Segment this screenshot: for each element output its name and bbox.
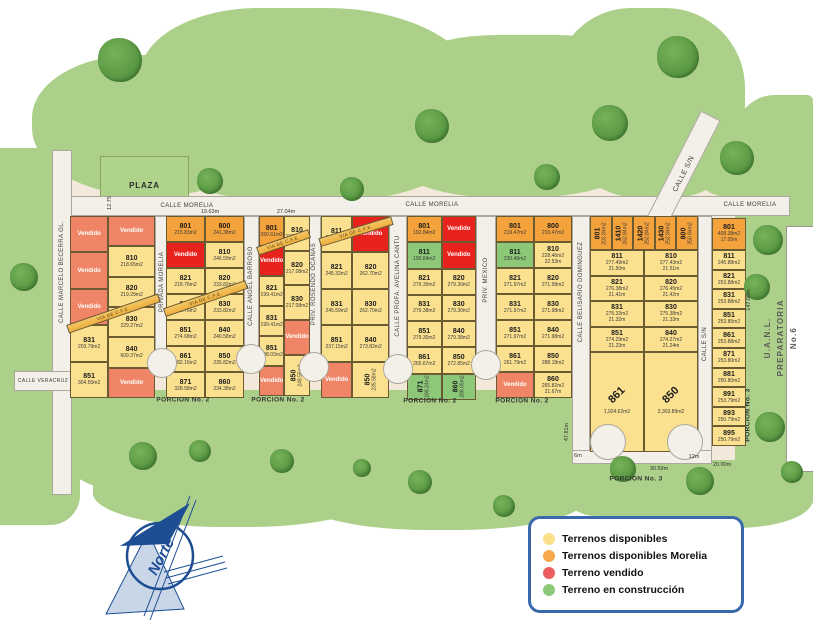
culdesac-block7-left (590, 424, 626, 460)
lot-vendido: Vendido (70, 252, 108, 288)
lot-860: 860265.82m221.67m (534, 372, 572, 398)
legend-item-label: Terreno en construcción (562, 584, 684, 596)
street-label-calle-sn-vertical: CALLE S/N (702, 327, 708, 361)
lot-801: 801215.83m2 (166, 216, 205, 242)
lot-851: 851271.97m2 (496, 320, 534, 346)
site-plan: PLAZA VendidoVendidoVendido831203.79m285… (0, 0, 813, 637)
street-label-morelia-mid: CALLE MORELIA (406, 202, 459, 208)
compass-icon: Norte (92, 494, 227, 624)
tree-icon (415, 109, 449, 143)
measurement-19-63: 19.63m (201, 209, 219, 215)
legend-item: Terreno en construcción (543, 584, 729, 596)
lot-820: 820217.08m2 (284, 251, 309, 286)
measurement-27-04: 27.04m (277, 209, 295, 215)
lot-851: 851253.85m2 (712, 309, 746, 329)
lot-801: 801219.47m2 (496, 216, 534, 242)
uanl-label: U.A.N.L. PREPARATORIA No.6 (762, 300, 800, 377)
lot-891: 891253.79m2 (712, 387, 746, 407)
lot-831: 831275.33m221.32m (590, 301, 644, 327)
lot-821: 821245.32m2 (321, 252, 352, 288)
plaza-label: PLAZA (129, 181, 160, 190)
lot-801: 801408.38m217.05m (712, 218, 746, 250)
culdesac-rosendo-ocanas (299, 352, 329, 382)
block-1: VendidoVendidoVendido831203.79m2851304.5… (70, 216, 155, 398)
lot-840: 840273.82m2 (352, 325, 389, 361)
street-label-marcelo-becerra: CALLE MARCELO BECERRA GL. (59, 221, 65, 323)
street-label-avelina-cantu: CALLE PROFA. AVELINA CANTU (395, 235, 401, 336)
lot-893: 893250.79m2 (712, 407, 746, 427)
tree-icon (657, 36, 699, 78)
lot-1410: 1410262.84m2 (612, 216, 634, 250)
lot-860: 860288.05m2 (442, 374, 477, 400)
lot-vendido: Vendido (284, 320, 309, 355)
lot-811: 811245.88m2 (712, 250, 746, 270)
legend-swatch (543, 550, 555, 562)
tree-icon (270, 449, 294, 473)
legend-item: Terrenos disponibles Morelia (543, 550, 729, 562)
lot-840: 840279.38m2 (442, 321, 477, 347)
lot-840: 840240.58m2 (205, 320, 244, 346)
lot-820: 820271.98m2 (534, 268, 572, 294)
lot-851: 851274.29m221.23m (590, 327, 644, 353)
lot-810: 810246.59m2 (205, 242, 244, 268)
lot-830: 830262.70m2 (352, 289, 389, 325)
lot-895: 895250.79m2 (712, 426, 746, 446)
street-label-belisario-dominguez: CALLE BELISARIO DOMINGUEZ (578, 242, 584, 343)
lot-821: 821279.30m2 (407, 269, 442, 295)
tree-icon (592, 105, 628, 141)
lot-800: 800250.84m2 (676, 216, 698, 250)
lot-881: 881250.80m2 (712, 368, 746, 388)
lot-821: 821253.88m2 (712, 270, 746, 290)
legend-item: Terrenos disponibles (543, 533, 729, 545)
measurement-12m: 12m (689, 454, 700, 460)
tree-icon (534, 164, 560, 190)
legend-rows: Terrenos disponiblesTerrenos disponibles… (543, 533, 729, 596)
porcion3-label-vertical: PORCION No. 3 (745, 388, 752, 441)
tree-icon (353, 459, 371, 477)
lot-800: 800241.38m2 (205, 216, 244, 242)
legend-swatch (543, 533, 555, 545)
tree-icon (493, 495, 515, 517)
tree-icon (10, 263, 38, 291)
culdesac-avelina-cantu (383, 354, 413, 384)
block-6: 801219.47m2811230.46m2821271.97m2831271.… (496, 216, 572, 398)
lot-831: 831199.41m2 (259, 306, 284, 336)
tree-icon (755, 412, 785, 442)
tree-icon (129, 442, 157, 470)
lot-821: 821199.41m2 (259, 276, 284, 306)
lot-810: 810277.43m221.51m (644, 250, 698, 276)
lot-831: 831271.97m2 (496, 294, 534, 320)
lot-vendido: Vendido (108, 368, 155, 398)
lot-810: 810218.65m2 (108, 246, 155, 276)
legend-item-label: Terrenos disponibles Morelia (562, 550, 707, 562)
tree-icon (197, 168, 223, 194)
lot-vendido: Vendido (166, 242, 205, 268)
lot-1430: 1430252.84m2 (655, 216, 677, 250)
lot-830: 830217.08m2 (284, 285, 309, 320)
legend-item-label: Terrenos disponibles (562, 533, 667, 545)
measurement-plaza: 12.75 (107, 196, 113, 210)
lot-1420: 1420252.84m2 (633, 216, 655, 250)
lot-860: 860234.38m2 (205, 372, 244, 398)
block-7: 801202.84m21410262.84m21420252.84m214302… (590, 216, 698, 452)
lot-810: 810228.46m222.53m (534, 242, 572, 268)
lot-vendido: Vendido (108, 216, 155, 246)
culdesac-angel-barroso (236, 344, 266, 374)
tree-icon (753, 225, 783, 255)
lot-vendido: Vendido (70, 216, 108, 252)
lot-851: 851304.50m2 (70, 362, 108, 398)
lot-830: 830275.38m221.33m (644, 301, 698, 327)
lot-800: 800219.47m2 (534, 216, 572, 242)
legend: Terrenos disponiblesTerrenos disponibles… (528, 516, 744, 613)
lot-831: 831245.59m2 (321, 289, 352, 325)
measurement-20-00: 20.00m (713, 462, 731, 468)
block-8: 801408.38m217.05m811245.88m2821253.88m28… (712, 218, 746, 446)
street-label-rosendo-ocanas: PRIV. ROSENDO OCANAS (311, 243, 317, 325)
lot-820: 820279.30m2 (442, 269, 477, 295)
porcion2-label: PORCION No. 2 (495, 398, 548, 405)
lot-820: 820262.70m2 (352, 252, 389, 288)
lot-vendido: Vendido (496, 372, 534, 398)
measurement-47-81: 47.81m (564, 423, 570, 441)
lot-801: 801202.84m2 (590, 216, 612, 250)
legend-swatch (543, 584, 555, 596)
lot-811: 811230.46m2 (496, 242, 534, 268)
lot-861: 861261.79m2 (496, 346, 534, 372)
block-2: 801215.83m2Vendido821218.76m2831270.76m2… (166, 216, 244, 398)
measurement-30-59: 30.59m (650, 466, 668, 472)
measurement-6m: 6m (574, 453, 582, 459)
measurement-147-06: 147.06m (746, 289, 752, 310)
legend-item-label: Terreno vendido (562, 567, 643, 579)
lot-871: 871253.80m2 (712, 348, 746, 368)
lot-850: 850288.18m2 (534, 346, 572, 372)
tree-icon (340, 177, 364, 201)
legend-swatch (543, 567, 555, 579)
lot-820: 820276.45m221.42m (644, 276, 698, 302)
street-label-morelia-right: CALLE MORELIA (724, 202, 777, 208)
porcion2-label: PORCION No. 2 (251, 397, 304, 404)
lot-830: 830279.30m2 (442, 295, 477, 321)
tree-icon (408, 470, 432, 494)
tree-icon (98, 38, 142, 82)
street-label-angel-barroso: CALLE ANGEL BARROSO (248, 246, 254, 326)
culdesac-privada-morelia (147, 348, 177, 378)
block-5: 801192.84m2811190.84m2821279.30m2831279.… (407, 216, 476, 400)
culdesac-priv-mexico (471, 350, 501, 380)
lot-821: 821218.76m2 (166, 268, 205, 294)
lot-851: 851274.68m2 (166, 320, 205, 346)
porcion2-label: PORCION No. 2 (403, 398, 456, 405)
tree-icon (189, 440, 211, 462)
lot-851: 851279.30m2 (407, 321, 442, 347)
street-label-priv-mexico: PRIV. MEXICO (483, 257, 489, 302)
porcion3-label: PORCION No. 3 (609, 476, 662, 483)
tree-icon (686, 467, 714, 495)
lot-vendido: Vendido (442, 216, 477, 242)
legend-item: Terreno vendido (543, 567, 729, 579)
lot-851: 851237.15m2 (321, 325, 352, 361)
lot-811: 811277.49m221.50m (590, 250, 644, 276)
lot-871: 871188.24m2 (407, 374, 442, 400)
lot-840: 840271.98m2 (534, 320, 572, 346)
lot-831: 831279.38m2 (407, 295, 442, 321)
lot-811: 811190.84m2 (407, 242, 442, 268)
porcion2-label: PORCION No. 2 (156, 397, 209, 404)
lot-840: 840274.27m221.24m (644, 327, 698, 353)
street-label-privada-morelia: PRIVADA MORELIA (159, 252, 165, 312)
lot-801: 801192.84m2 (407, 216, 442, 242)
tree-icon (720, 141, 754, 175)
lot-830: 830271.98m2 (534, 294, 572, 320)
block-4: 811295.32m2821245.32m2831245.59m2851237.… (321, 216, 389, 398)
tree-icon (781, 461, 803, 483)
lot-831: 831253.88m2 (712, 289, 746, 309)
lot-861: 861253.88m2 (712, 328, 746, 348)
lot-vendido: Vendido (442, 242, 477, 268)
lot-871: 871328.58m2 (166, 372, 205, 398)
lot-vendido: Vendido (259, 366, 284, 396)
lot-821: 821271.97m2 (496, 268, 534, 294)
lot-821: 821276.38m221.41m (590, 276, 644, 302)
street-label-veracruz: CALLE VERACRUZ (18, 378, 68, 384)
